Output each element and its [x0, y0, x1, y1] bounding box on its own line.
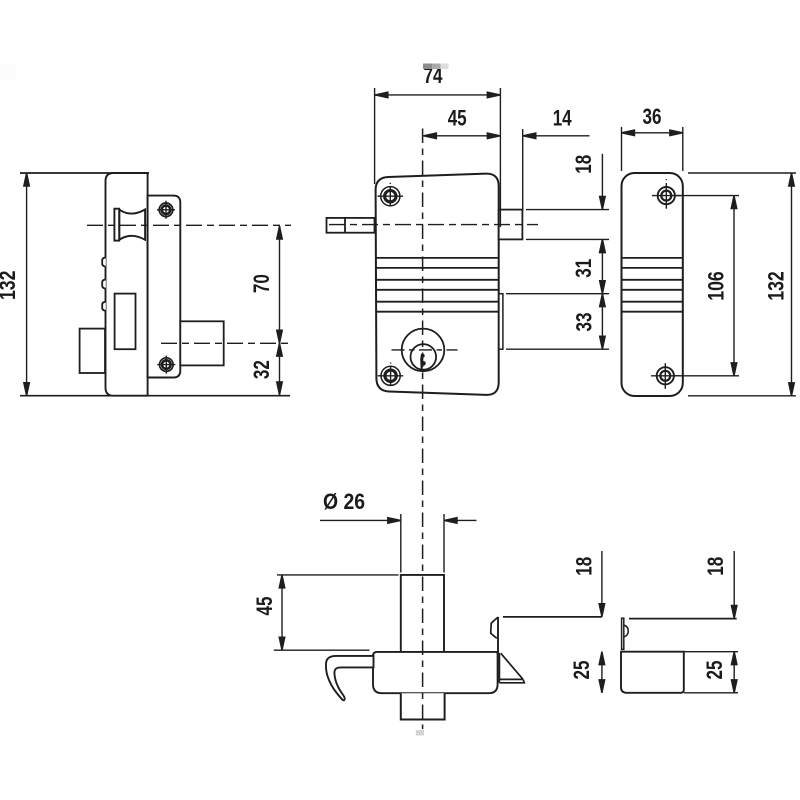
- svg-text:18: 18: [703, 557, 728, 576]
- svg-text:14: 14: [553, 105, 573, 130]
- svg-text:32: 32: [249, 360, 274, 379]
- svg-text:132: 132: [0, 271, 20, 301]
- svg-text:70: 70: [249, 274, 274, 293]
- svg-text:18: 18: [571, 155, 596, 174]
- svg-text:36: 36: [643, 104, 662, 129]
- svg-text:33: 33: [572, 313, 597, 332]
- svg-text:18: 18: [572, 557, 597, 576]
- svg-text:106: 106: [704, 271, 729, 301]
- svg-text:45: 45: [448, 105, 467, 130]
- svg-text:25: 25: [702, 661, 727, 680]
- svg-text:45: 45: [252, 597, 277, 616]
- svg-text:132: 132: [764, 271, 789, 301]
- svg-text:31: 31: [571, 259, 596, 278]
- svg-text:Ø 26: Ø 26: [323, 489, 365, 514]
- svg-text:25: 25: [569, 661, 594, 680]
